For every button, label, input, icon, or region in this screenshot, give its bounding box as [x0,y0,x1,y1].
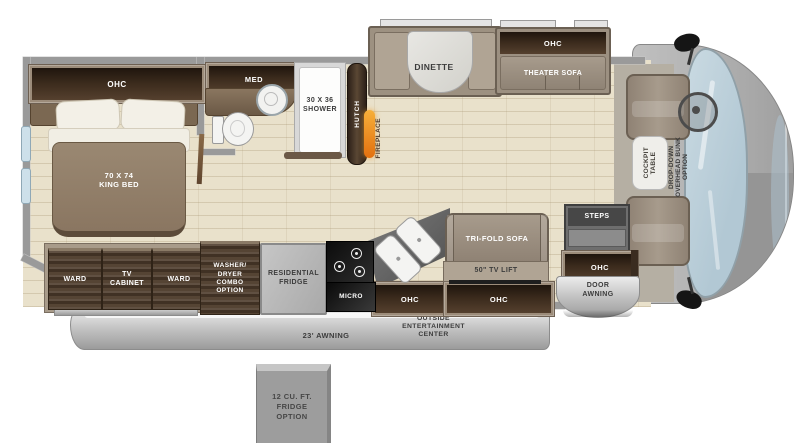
entry-wall-strip [631,250,638,276]
bunk-line3: OPTION [682,137,689,197]
fridge-label: RESIDENTIAL FRIDGE [268,270,319,288]
door-awning-line2: AWNING [582,291,613,298]
washer-line2: DRYER [218,271,243,278]
bedroom-overhead-cabinet: OHC [28,64,206,104]
fridge-option-line3: OPTION [276,412,307,421]
cab-side-window [771,115,789,275]
sofa-armrest-right [540,215,547,262]
sink-drain [416,237,422,243]
bed-size-label: 70 x 74 [105,171,134,180]
bunk-line2: OVERHEAD BUNK [675,137,682,197]
tri-fold-sofa: TRI-FOLD SOFA [445,213,549,264]
micro-label: MICRO [339,293,363,301]
door-awning-label: DOOR AWNING [582,282,613,300]
theater-sofa-seat: THEATER SOFA [500,56,606,90]
theater-seat-divider [579,76,580,90]
cockpit-table-label: COCKPIT TABLE [643,147,657,178]
floorplan-canvas: OHC 70 x 74 KING BED MED 30 x 36 SHOWER … [0,0,800,443]
bedroom-ohc-label: OHC [107,80,126,89]
bedroom-window [21,168,31,204]
fireplace-label: FIREPLACE [375,118,382,158]
bed-label: 70 x 74 KING BED [53,171,185,190]
burner-icon [354,266,365,277]
washer-line3: COMBO [217,279,244,286]
windshield-glare [708,190,720,270]
door-awning-lip [563,310,633,317]
sofa-armrest-left [447,215,454,262]
bed-name-label: KING BED [99,180,139,189]
shower-stall: 30 x 36 SHOWER [294,62,346,158]
washer-line1: WASHER/ [213,262,246,269]
door-awning: DOOR AWNING [556,276,640,318]
step-tread-top: STEPS [568,208,626,226]
microwave: MICRO [326,282,376,312]
door-awning-line1: DOOR [587,282,610,289]
med-label: MED [245,75,263,84]
tv-lift-console: 50" TV LIFT [443,261,549,282]
theater-seat-divider [545,76,546,90]
fridge-option-label: 12 CU. FT. FRIDGE OPTION [272,392,312,421]
kitchen-ohc-left-face: OHC [375,285,445,313]
shower-label: 30 x 36 SHOWER [295,97,345,115]
theater-ohc-label: OHC [544,39,562,48]
dinette-label: DINETTE [390,62,478,73]
ward-left-label: WARD [64,276,87,285]
fridge-line1: RESIDENTIAL [268,270,319,277]
step-tread-bottom [568,229,626,247]
tv-cabinet-label: TV CABINET [110,271,144,289]
bath-mat [284,152,342,159]
outside-entertainment-label: OUTSIDE ENTERTAINMENT CENTER [371,315,496,339]
residential-fridge: RESIDENTIAL FRIDGE [260,243,327,315]
kitchen-ohc-left-label: OHC [401,295,419,304]
bedroom-window [21,126,31,162]
fireplace-label-wrap: FIREPLACE [375,108,387,168]
washer-dryer-label: WASHER/ DRYER COMBO OPTION [213,262,246,296]
cooktop [326,241,374,284]
shower-name-label: SHOWER [303,106,337,113]
tv-cabinet-line1: TV [122,271,132,278]
vanity-sink-bowl [264,92,278,106]
overhead-bunk-text: DROP-DOWN OVERHEAD BUNK OPTION [668,137,689,197]
ward-right-label: WARD [168,276,191,285]
steps-label: STEPS [585,213,610,222]
tv-lift-label: 50" TV LIFT [474,267,517,276]
sink-drain [395,256,401,262]
washer-dryer-cabinet: WASHER/ DRYER COMBO OPTION [200,241,260,315]
fireplace-flame-icon [364,110,375,158]
wall-bath-stub [203,149,235,155]
kitchen-ohc-right-label: OHC [490,295,508,304]
tv-cabinet-line2: CABINET [110,280,144,287]
burner-icon [351,248,362,259]
toilet-bowl-icon [222,112,254,146]
vanity-sink-icon [256,84,288,116]
shower-size-label: 30 x 36 [307,97,334,104]
theater-sofa-label: THEATER SOFA [524,70,582,77]
bedroom-ohc-face: OHC [32,68,202,100]
wardrobe-left: WARD [48,248,102,310]
tv-lift-screen [449,280,541,284]
outside-line3: CENTER [418,331,448,338]
theater-sofa-unit: OHC THEATER SOFA [495,27,611,95]
king-bed: 70 x 74 KING BED [52,142,186,237]
dinette-bench-left [374,32,410,90]
kitchen-ohc-right-face: OHC [447,285,551,313]
fridge-option-line1: 12 CU. FT. [272,392,312,401]
kitchen-ohc-left: OHC [371,281,449,317]
wardrobe-right: WARD [152,248,206,310]
kitchen-ohc-right: OHC [443,281,555,317]
bunk-line1: DROP-DOWN [668,137,675,197]
outside-line2: ENTERTAINMENT [402,323,465,330]
washer-line4: OPTION [216,287,243,294]
entry-steps: STEPS [564,204,630,254]
tri-fold-sofa-label: TRI-FOLD SOFA [466,234,529,243]
fridge-option-line2: FRIDGE [277,402,308,411]
cockpit-table-line2: TABLE [650,147,657,178]
burner-icon [334,261,345,272]
tv-cabinet: TV CABINET [102,248,152,310]
fridge-option-box: 12 CU. FT. FRIDGE OPTION [256,364,331,443]
fridge-line2: FRIDGE [279,279,308,286]
theater-ohc: OHC [500,32,606,54]
entry-ohc-label: OHC [591,263,609,272]
overhead-bunk-note: DROP-DOWN OVERHEAD BUNK OPTION [662,104,694,230]
toilet-bowl-inner [230,120,245,137]
hutch-label: HUTCH [354,100,361,128]
cockpit-table-line1: COCKPIT [643,147,650,178]
